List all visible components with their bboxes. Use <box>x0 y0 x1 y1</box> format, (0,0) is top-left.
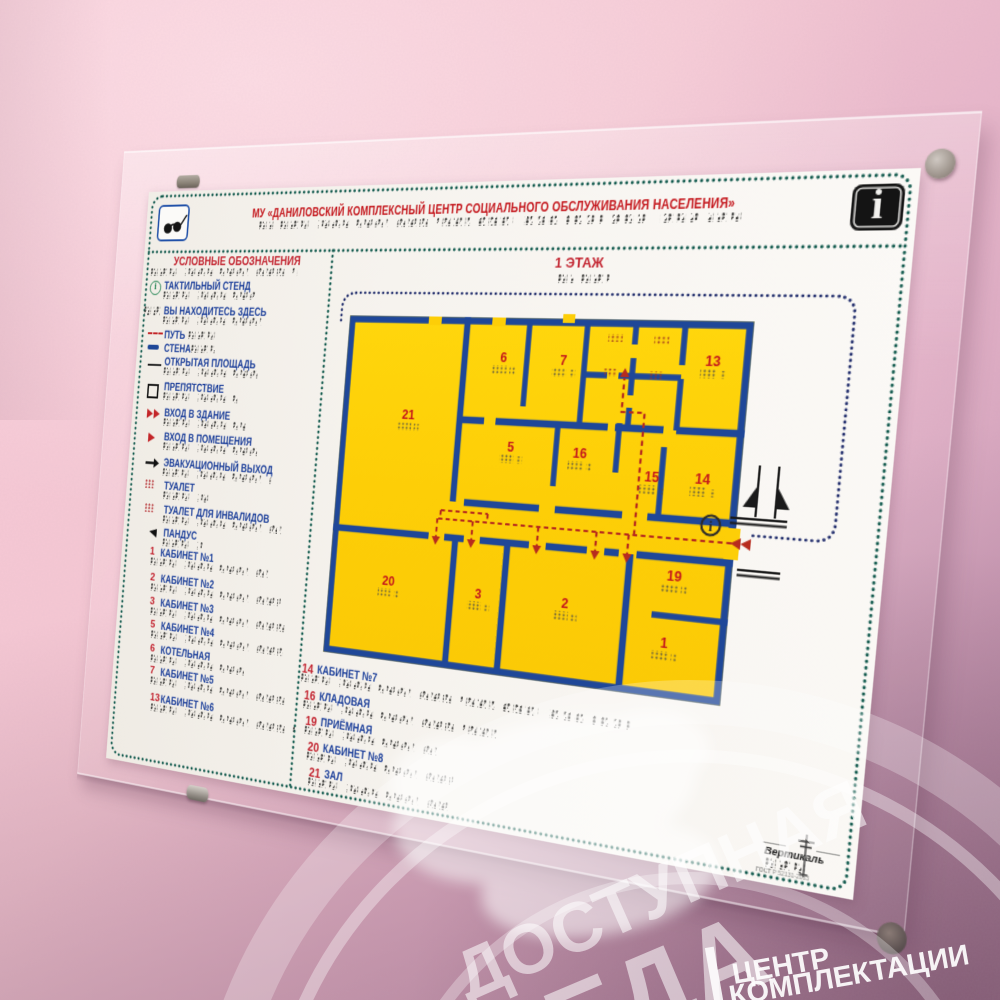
svg-text:20: 20 <box>382 574 396 590</box>
svg-text:14: 14 <box>694 471 711 488</box>
svg-text:19: 19 <box>666 568 683 586</box>
svg-text:15: 15 <box>644 469 660 486</box>
svg-text:16: 16 <box>572 446 588 463</box>
svg-text:21: 21 <box>401 408 415 424</box>
svg-text:13: 13 <box>705 354 722 371</box>
